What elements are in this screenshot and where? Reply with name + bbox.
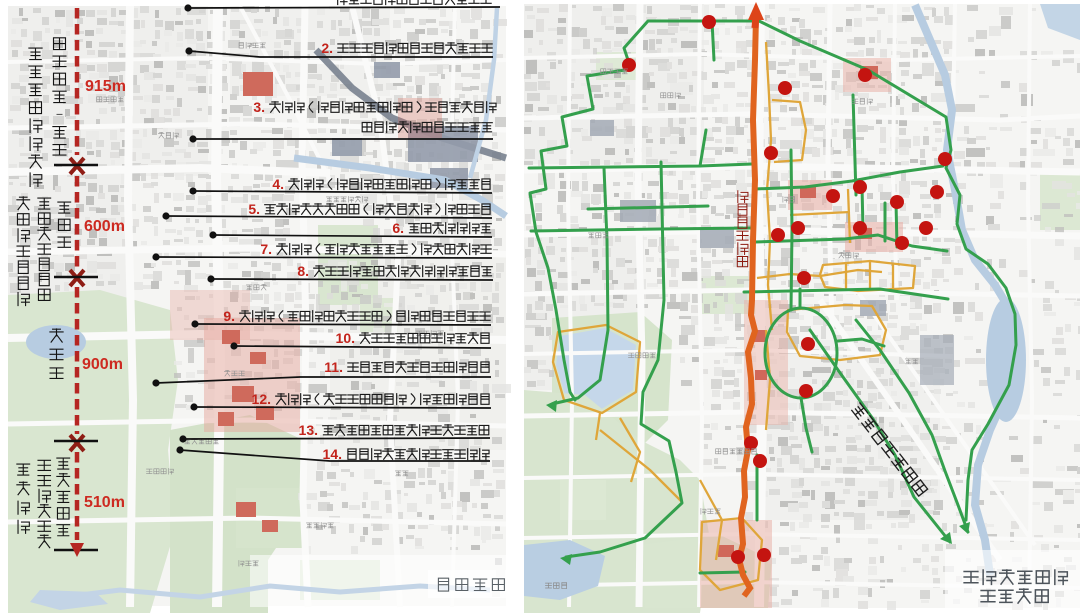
svg-text:8.: 8. (297, 263, 309, 279)
svg-text:510m: 510m (84, 494, 125, 511)
svg-text:2.: 2. (321, 40, 333, 56)
svg-text:12.: 12. (252, 391, 271, 407)
svg-text:4.: 4. (272, 176, 284, 192)
svg-text:7.: 7. (260, 241, 272, 257)
svg-text:13.: 13. (299, 422, 318, 438)
svg-text:11.: 11. (324, 359, 343, 375)
svg-text:14.: 14. (323, 446, 342, 462)
svg-text:5.: 5. (248, 201, 260, 217)
svg-text:6.: 6. (392, 220, 404, 236)
svg-text:600m: 600m (84, 218, 125, 235)
svg-text:900m: 900m (82, 356, 123, 373)
svg-text:9.: 9. (223, 308, 235, 324)
svg-text:10.: 10. (336, 330, 355, 346)
svg-text:3.: 3. (253, 99, 265, 115)
svg-text:915m: 915m (85, 78, 126, 95)
